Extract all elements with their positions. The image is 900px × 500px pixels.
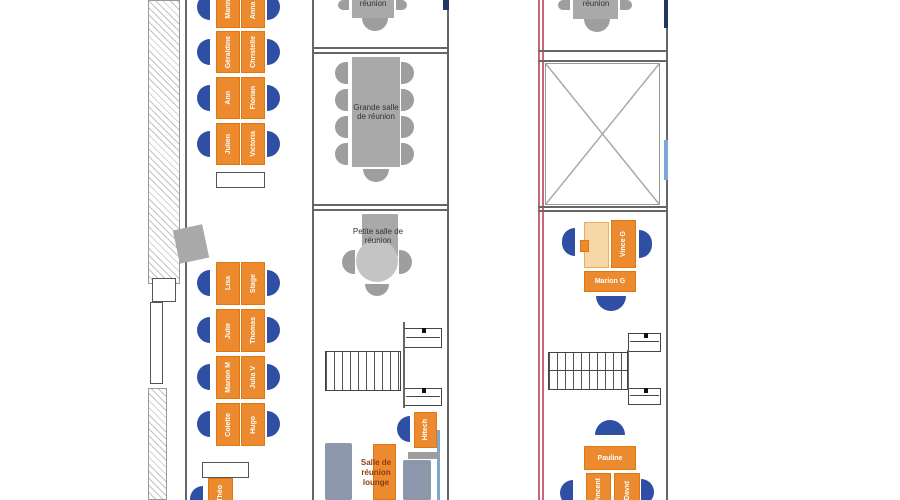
desk-label: Florian bbox=[250, 86, 257, 109]
desk-vince-g[interactable]: Vince G bbox=[611, 220, 636, 268]
desk-david[interactable]: David bbox=[614, 473, 640, 500]
desk-label: Colette bbox=[225, 413, 232, 437]
desk-stage[interactable]: Stage bbox=[241, 262, 265, 305]
chair-icon bbox=[595, 420, 625, 435]
chair-icon bbox=[401, 116, 414, 138]
desk-marion-g[interactable]: Marion G bbox=[584, 271, 636, 292]
chair-icon bbox=[267, 411, 280, 437]
chair-icon bbox=[267, 0, 280, 20]
wall-divider bbox=[312, 204, 449, 206]
desk-marine[interactable]: Marine bbox=[216, 0, 240, 28]
chair-icon bbox=[342, 250, 355, 274]
chair-icon bbox=[335, 116, 348, 138]
railing bbox=[628, 388, 661, 405]
room-label: réunion bbox=[563, 0, 629, 9]
desk-hugo[interactable]: Hugo bbox=[241, 403, 265, 446]
desk-hitech[interactable]: Hitech bbox=[414, 412, 437, 448]
hatched-wall-bottom-left bbox=[148, 388, 167, 500]
side-table bbox=[216, 172, 265, 188]
void-area bbox=[545, 63, 660, 205]
lounge-couch bbox=[403, 460, 431, 500]
desk-label: Lisa bbox=[225, 276, 232, 290]
chair-icon bbox=[197, 364, 210, 390]
desk-anna-p[interactable]: Anna P bbox=[241, 0, 265, 28]
door-marker-blue bbox=[664, 140, 668, 180]
tilted-cabinet bbox=[173, 224, 209, 263]
staircase bbox=[325, 351, 401, 391]
desk-marion-m[interactable]: Marion M bbox=[216, 356, 240, 399]
desk-accessory bbox=[580, 240, 589, 252]
stairwell-wall bbox=[403, 322, 405, 408]
desk-ann[interactable]: Ann bbox=[216, 77, 240, 119]
desk-label: Julien bbox=[225, 134, 232, 154]
wall-middle-left bbox=[312, 0, 314, 500]
desk-label: David bbox=[624, 481, 631, 500]
desk-geraldine[interactable]: Géraldine bbox=[216, 31, 240, 73]
shelf bbox=[408, 452, 440, 459]
desk-pauline[interactable]: Pauline bbox=[584, 446, 636, 470]
desk-thomas[interactable]: Thomas bbox=[241, 309, 265, 352]
chair-icon bbox=[197, 0, 210, 20]
desk-label: Vince G bbox=[620, 231, 627, 257]
chair-icon bbox=[401, 89, 414, 111]
chair-icon bbox=[197, 411, 210, 437]
desk-label: Vincent bbox=[595, 478, 602, 500]
desk-label: Pauline bbox=[598, 455, 623, 462]
desk-victoria[interactable]: Victoria bbox=[241, 123, 265, 165]
wall-divider bbox=[538, 210, 668, 212]
wall-divider bbox=[312, 47, 449, 49]
desk-label: Hugo bbox=[250, 416, 257, 434]
chair-icon bbox=[335, 89, 348, 111]
chair-icon bbox=[596, 296, 626, 311]
cross-icon bbox=[546, 64, 659, 204]
window-strip bbox=[150, 302, 163, 384]
wall-divider bbox=[312, 52, 449, 54]
railing bbox=[404, 328, 442, 348]
door-opening bbox=[152, 278, 176, 302]
chair-icon bbox=[267, 39, 280, 65]
chair-icon bbox=[197, 131, 210, 157]
desk-label: Julia V bbox=[250, 366, 257, 389]
chair-icon bbox=[584, 19, 610, 32]
desk-label: Julie bbox=[225, 323, 232, 339]
wall-pink bbox=[542, 0, 544, 500]
chair-icon bbox=[197, 85, 210, 111]
wall-divider bbox=[312, 209, 449, 211]
desk-julie[interactable]: Julie bbox=[216, 309, 240, 352]
desk-colette[interactable]: Colette bbox=[216, 403, 240, 446]
chair-icon bbox=[197, 317, 210, 343]
desk-lisa[interactable]: Lisa bbox=[216, 262, 240, 305]
desk-florian[interactable]: Florian bbox=[241, 77, 265, 119]
floor-plan: Marine Anna P Géraldine Christelle Ann F… bbox=[0, 0, 900, 500]
desk-vincent[interactable]: Vincent bbox=[586, 473, 611, 500]
room-label: Grande salle de réunion bbox=[352, 103, 400, 121]
chair-icon bbox=[267, 364, 280, 390]
desk-label: Marion G bbox=[595, 278, 625, 285]
desk-label: Christelle bbox=[250, 36, 257, 68]
chair-icon bbox=[562, 228, 575, 256]
desk-label: Marion M bbox=[225, 362, 232, 393]
chair-icon bbox=[560, 480, 573, 500]
wall-divider bbox=[538, 50, 668, 52]
corner-table bbox=[202, 462, 249, 478]
desk-label: Théo bbox=[217, 485, 224, 500]
desk-label: Hitech bbox=[422, 419, 429, 440]
door-marker-navy bbox=[443, 0, 449, 10]
chair-icon bbox=[267, 270, 280, 296]
desk-label: Géraldine bbox=[225, 36, 232, 68]
wall-right bbox=[666, 0, 668, 500]
room-label: Petite salle de réunion bbox=[352, 228, 404, 246]
chair-icon bbox=[641, 479, 654, 500]
desk-julia-v[interactable]: Julia V bbox=[241, 356, 265, 399]
chair-icon bbox=[399, 250, 412, 274]
door-marker-navy bbox=[664, 0, 668, 28]
chair-icon bbox=[639, 230, 652, 258]
chair-icon bbox=[365, 284, 389, 296]
chair-icon bbox=[335, 62, 348, 84]
chair-icon bbox=[267, 85, 280, 111]
desk-label: Ann bbox=[225, 91, 232, 105]
room-label-lounge: Salle de réunion lounge bbox=[350, 458, 402, 488]
round-table bbox=[356, 240, 398, 282]
room-label: réunion bbox=[340, 0, 406, 9]
desk-theo[interactable]: Théo bbox=[208, 478, 233, 500]
railing bbox=[628, 333, 661, 352]
chair-icon bbox=[401, 62, 414, 84]
chair-icon bbox=[362, 18, 388, 31]
desk-label: Marine bbox=[225, 0, 232, 18]
desk-label: Anna P bbox=[250, 0, 257, 19]
railing bbox=[404, 388, 442, 406]
room-grande-salle[interactable]: Grande salle de réunion bbox=[352, 57, 400, 167]
chair-icon bbox=[267, 131, 280, 157]
wall-divider bbox=[538, 206, 668, 208]
staircase bbox=[548, 352, 628, 390]
wall-middle-right bbox=[447, 0, 449, 500]
chair-icon bbox=[397, 416, 410, 442]
door-marker-blue bbox=[437, 430, 440, 500]
desk-julien[interactable]: Julien bbox=[216, 123, 240, 165]
desk-christelle[interactable]: Christelle bbox=[241, 31, 265, 73]
chair-icon bbox=[197, 39, 210, 65]
chair-icon bbox=[363, 169, 389, 182]
lounge-couch bbox=[325, 443, 352, 500]
wall-pink bbox=[538, 0, 540, 500]
wall-divider bbox=[538, 60, 668, 62]
chair-icon bbox=[267, 317, 280, 343]
chair-icon bbox=[197, 270, 210, 296]
desk-label: Thomas bbox=[250, 317, 257, 344]
chair-icon bbox=[335, 143, 348, 165]
chair-icon bbox=[190, 486, 203, 500]
desk-label: Victoria bbox=[250, 131, 257, 157]
chair-icon bbox=[401, 143, 414, 165]
desk-label: Stage bbox=[250, 274, 257, 293]
